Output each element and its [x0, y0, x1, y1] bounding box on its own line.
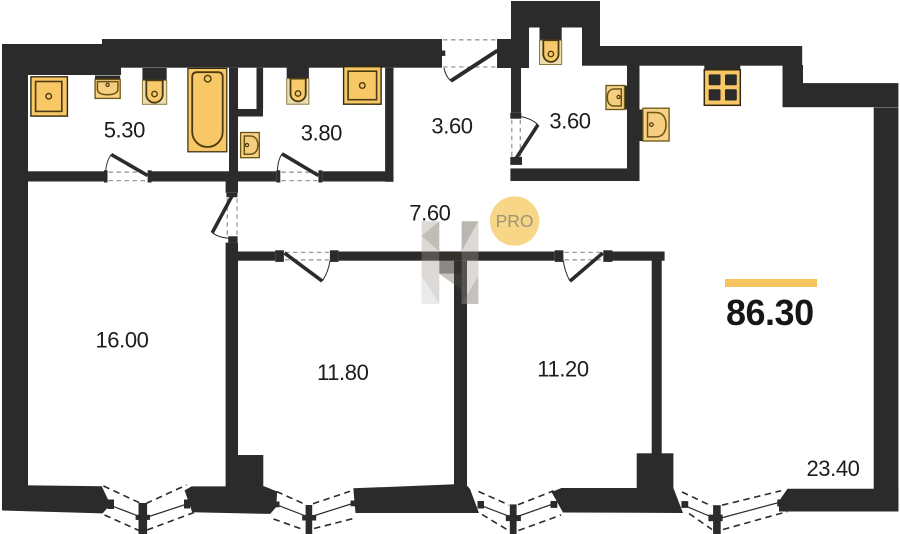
svg-text:11.20: 11.20: [537, 357, 589, 382]
svg-text:5.30: 5.30: [104, 118, 145, 143]
svg-text:7.60: 7.60: [409, 201, 450, 226]
svg-text:3.60: 3.60: [431, 114, 472, 139]
svg-text:PRO: PRO: [496, 211, 534, 231]
svg-text:11.80: 11.80: [317, 360, 369, 385]
svg-text:86.30: 86.30: [726, 292, 814, 333]
svg-text:23.40: 23.40: [806, 456, 859, 481]
svg-text:16.00: 16.00: [95, 328, 148, 353]
svg-text:3.60: 3.60: [549, 109, 590, 134]
svg-text:3.80: 3.80: [301, 121, 342, 146]
